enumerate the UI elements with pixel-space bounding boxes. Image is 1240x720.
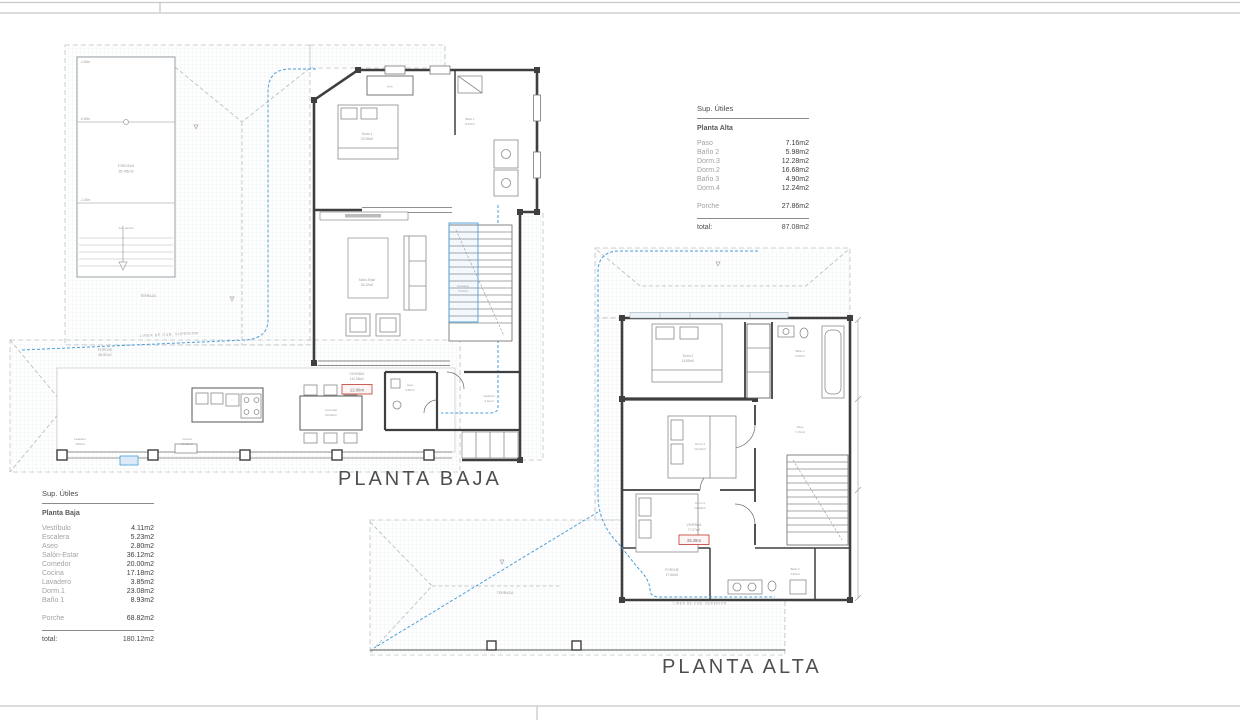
- table-row: Vestíbulo4.11m2: [42, 524, 154, 533]
- room-label: Comedor: [42, 560, 71, 569]
- table-row: Dorm.412.24m2: [697, 184, 809, 193]
- porche-alta-label: PORCHE: [665, 568, 679, 572]
- room-label: Dorm.1: [42, 587, 65, 596]
- planta-baja-stairs: [449, 223, 512, 341]
- room-label: Baño 2: [697, 148, 719, 157]
- room-area: 16.68m2: [782, 166, 809, 175]
- room-area: 27.86m2: [782, 202, 809, 211]
- terraza-baja-label: TERRAZA: [140, 294, 157, 298]
- table-subtitle: Planta Alta: [697, 124, 809, 133]
- room-area: 4.11m2: [131, 524, 154, 533]
- pool-name: PISCINA: [118, 163, 134, 168]
- planta-alta-dimension-line: [855, 317, 861, 601]
- room-area: 5.98m2: [786, 148, 809, 157]
- table-row: Dorm.123.08m2: [42, 587, 154, 596]
- room-label: Baño 3: [697, 175, 719, 184]
- outdoor-shower: [120, 456, 138, 465]
- sup-utiles-table-planta-baja: Sup. Útiles Planta Baja Vestíbulo4.11m2 …: [42, 489, 154, 644]
- table-row: Paso7.16m2: [697, 139, 809, 148]
- room-area: 36.12m2: [127, 551, 154, 560]
- drawing-sheet: -1.50m -0.80m -1.20m PISCINA 35.45m2 Acc…: [0, 0, 1240, 720]
- room-label: Vestíbulo: [42, 524, 71, 533]
- vivienda-baja-label: VIVIENDA: [350, 372, 366, 376]
- lavadero-label: Lavadero: [74, 437, 86, 441]
- vivienda-baja-cota-badge: 12.00m: [342, 385, 372, 395]
- table-row: Comedor20.00m2: [42, 560, 154, 569]
- total-value: 180.12m2: [123, 635, 154, 644]
- aseo-label: Aseo: [407, 383, 414, 387]
- vivienda-alta-label: VIVIENDA: [687, 523, 703, 527]
- table-row: Aseo2.80m2: [42, 542, 154, 551]
- salon-label: Salón-Estar: [359, 278, 377, 282]
- table-row: Dorm.312.28m2: [697, 157, 809, 166]
- room-area: 4.90m2: [786, 175, 809, 184]
- planta-alta-window-band: [630, 313, 788, 319]
- bano1-label: Baño 1: [466, 117, 475, 121]
- room-label: Dorm.4: [697, 184, 720, 193]
- salon-area: 36.12m2: [361, 283, 374, 287]
- table-row: Lavadero3.85m2: [42, 578, 154, 587]
- terraza-alta-label: TERRAZA: [497, 591, 514, 595]
- aseo-area: 2.80m2: [405, 388, 415, 392]
- table-row: Cocina17.18m2: [42, 569, 154, 578]
- pool-depth-top: -1.50m: [80, 60, 91, 64]
- cocina-area: 17.18m2: [181, 442, 193, 446]
- bano2-area: 5.98m2: [795, 354, 805, 358]
- room-area: 12.28m2: [782, 157, 809, 166]
- room-label: Porche: [42, 614, 64, 623]
- room-area: 20.00m2: [127, 560, 154, 569]
- table-subtitle: Planta Baja: [42, 509, 154, 518]
- room-area: 68.82m2: [127, 614, 154, 623]
- table-row-porche: Porche68.82m2: [42, 614, 154, 623]
- table-row: Baño 25.98m2: [697, 148, 809, 157]
- table-total-row: total:87.08m2: [697, 218, 809, 232]
- escalera-label: Escalera: [458, 284, 469, 288]
- planta-alta-stairs: [787, 455, 848, 545]
- bano3-area: 4.90m2: [790, 572, 800, 576]
- table-header: Sup. Útiles: [697, 104, 809, 119]
- room-area: 23.08m2: [127, 587, 154, 596]
- room-area: 8.93m2: [131, 596, 154, 605]
- table-row: Dorm.216.68m2: [697, 166, 809, 175]
- piscina: -1.50m -0.80m -1.20m PISCINA 35.45m2 Acc…: [77, 57, 175, 277]
- room-area: 3.85m2: [131, 578, 154, 587]
- room-label: Salón-Estar: [42, 551, 79, 560]
- bano3-label: Baño 3: [791, 567, 800, 571]
- room-label: Porche: [697, 202, 719, 211]
- dorm1-area: 23.08m2: [361, 137, 374, 141]
- vivienda-alta-area: 77.07m2: [688, 528, 701, 532]
- dorm4-area: 12.24m2: [694, 447, 706, 451]
- dorm2-area: 16.68m2: [682, 359, 695, 363]
- sup-utiles-table-planta-alta: Sup. Útiles Planta Alta Paso7.16m2 Baño …: [697, 104, 809, 232]
- arm-label: Arm.: [387, 85, 393, 89]
- dorm3-label: Dorm.3: [695, 501, 705, 505]
- dorm4-label: Dorm.4: [695, 442, 705, 446]
- vivienda-baja-area: 142.98m2: [350, 377, 364, 381]
- vivienda-alta-cota: 35.38m: [687, 538, 701, 543]
- vestibulo-label: Vestíbulo: [483, 394, 495, 398]
- cocina-label: Cocina: [182, 437, 192, 441]
- planta-baja-title: PLANTA BAJA: [338, 468, 502, 491]
- porche-baja-label: PORCHE: [98, 348, 113, 352]
- table-row: Baño 18.93m2: [42, 596, 154, 605]
- dorm2-label: Dorm.2: [683, 354, 694, 358]
- table-row: Baño 34.90m2: [697, 175, 809, 184]
- vivienda-baja-cota: 12.00m: [350, 388, 364, 393]
- room-label: Lavadero: [42, 578, 71, 587]
- room-label: Baño 1: [42, 596, 64, 605]
- bano1-area: 8.93m2: [465, 122, 475, 126]
- dorm1-label: Dorm.1: [362, 132, 373, 136]
- paso-label: Paso: [797, 425, 804, 429]
- table-row: Salón-Estar36.12m2: [42, 551, 154, 560]
- vestibulo-area: 4.11m2: [484, 399, 494, 403]
- pool-depth-mid: -0.80m: [80, 117, 91, 121]
- pool-access-label: Acc. piscina: [119, 226, 134, 230]
- room-area: 2.80m2: [131, 542, 154, 551]
- bano2-label: Baño 2: [796, 349, 805, 353]
- vivienda-alta-cota-badge: 35.38m: [679, 535, 709, 545]
- room-label: Cocina: [42, 569, 64, 578]
- room-label: Escalera: [42, 533, 69, 542]
- paso-area: 7.16m2: [795, 430, 805, 434]
- planta-alta-title: PLANTA ALTA: [662, 656, 822, 679]
- table-total-row: total:180.12m2: [42, 630, 154, 644]
- comedor-label: Comedor: [325, 408, 337, 412]
- porche-baja-area: 68.82m2: [98, 353, 111, 357]
- porche-alta-area: 27.86m2: [666, 573, 679, 577]
- room-area: 7.16m2: [786, 139, 809, 148]
- room-label: Aseo: [42, 542, 58, 551]
- table-row-porche: Porche27.86m2: [697, 202, 809, 211]
- room-area: 17.18m2: [127, 569, 154, 578]
- escalera-area: 5.23m2: [458, 289, 468, 293]
- pool-depth-low: -1.20m: [80, 198, 91, 202]
- room-label: Dorm.3: [697, 157, 720, 166]
- total-label: total:: [42, 635, 57, 644]
- room-label: Dorm.2: [697, 166, 720, 175]
- dorm3-area: 12.28m2: [694, 506, 706, 510]
- table-row: Escalera5.23m2: [42, 533, 154, 542]
- pool-area: 35.45m2: [118, 169, 134, 174]
- comedor-area: 20.00m2: [325, 413, 337, 417]
- room-label: Paso: [697, 139, 713, 148]
- room-area: 12.24m2: [782, 184, 809, 193]
- total-label: total:: [697, 223, 712, 232]
- table-header: Sup. Útiles: [42, 489, 154, 504]
- lavadero-area: 3.85m2: [75, 442, 85, 446]
- floorplan-drawing: -1.50m -0.80m -1.20m PISCINA 35.45m2 Acc…: [0, 0, 1240, 720]
- room-area: 5.23m2: [131, 533, 154, 542]
- planta-alta-roofline-label: LINEA DE CUB. SUPERIOR: [673, 602, 727, 606]
- total-value: 87.08m2: [782, 223, 809, 232]
